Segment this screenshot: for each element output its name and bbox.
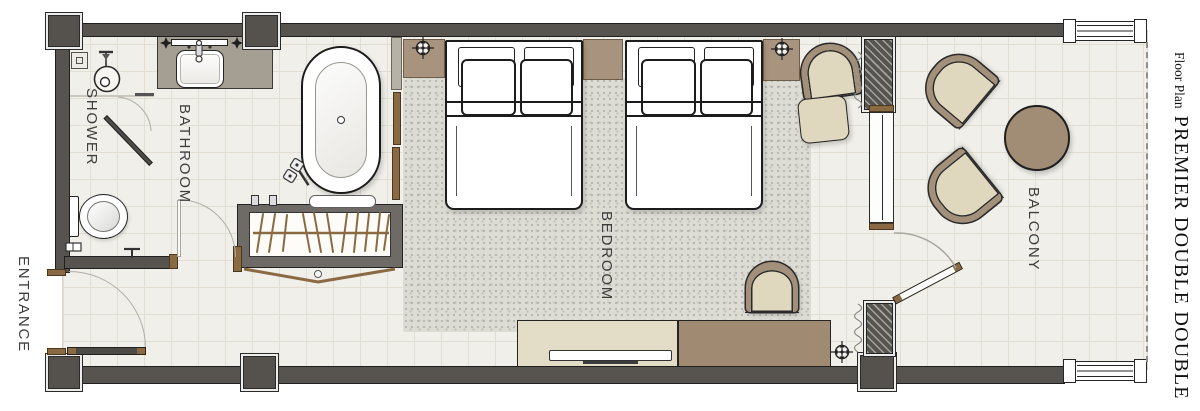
room-label-shower: SHOWER	[83, 88, 100, 166]
room-label-entrance: ENTRANCE	[15, 256, 32, 353]
shower-head-nozzle	[102, 54, 110, 60]
plan-title: Floor PlanPREMIER DOUBLE DOUBLE	[1169, 52, 1192, 400]
ceiling-light-icon	[160, 37, 172, 49]
decoration-layer	[0, 0, 1200, 411]
sprinkler-icon	[831, 341, 853, 363]
plan-title-name: PREMIER DOUBLE DOUBLE	[1170, 116, 1192, 400]
plan-title-prefix: Floor Plan	[1172, 52, 1187, 109]
floor-plan: SHOWER BATHROOM ENTRANCE BEDROOM BALCONY…	[0, 0, 1200, 411]
faucet-handle	[208, 45, 211, 48]
sprinkler-icon	[771, 38, 793, 60]
sprinkler-icon	[412, 37, 434, 59]
faucet-spout	[196, 56, 202, 62]
room-label-balcony: BALCONY	[1025, 187, 1042, 271]
faucet-top	[197, 41, 202, 46]
wardrobe-door-knob	[315, 271, 322, 278]
curtain-icon	[855, 304, 862, 352]
curtain-icon	[855, 52, 862, 108]
shower-door-swing	[118, 97, 151, 131]
balcony-door-swing	[894, 233, 956, 268]
room-label-bathroom: BATHROOM	[176, 104, 193, 204]
faucet-handle	[187, 45, 190, 48]
room-label-bedroom: BEDROOM	[598, 211, 615, 301]
shower-head-center	[101, 78, 110, 87]
bathtub-faucet	[283, 158, 317, 191]
ceiling-light-icon	[231, 37, 243, 49]
